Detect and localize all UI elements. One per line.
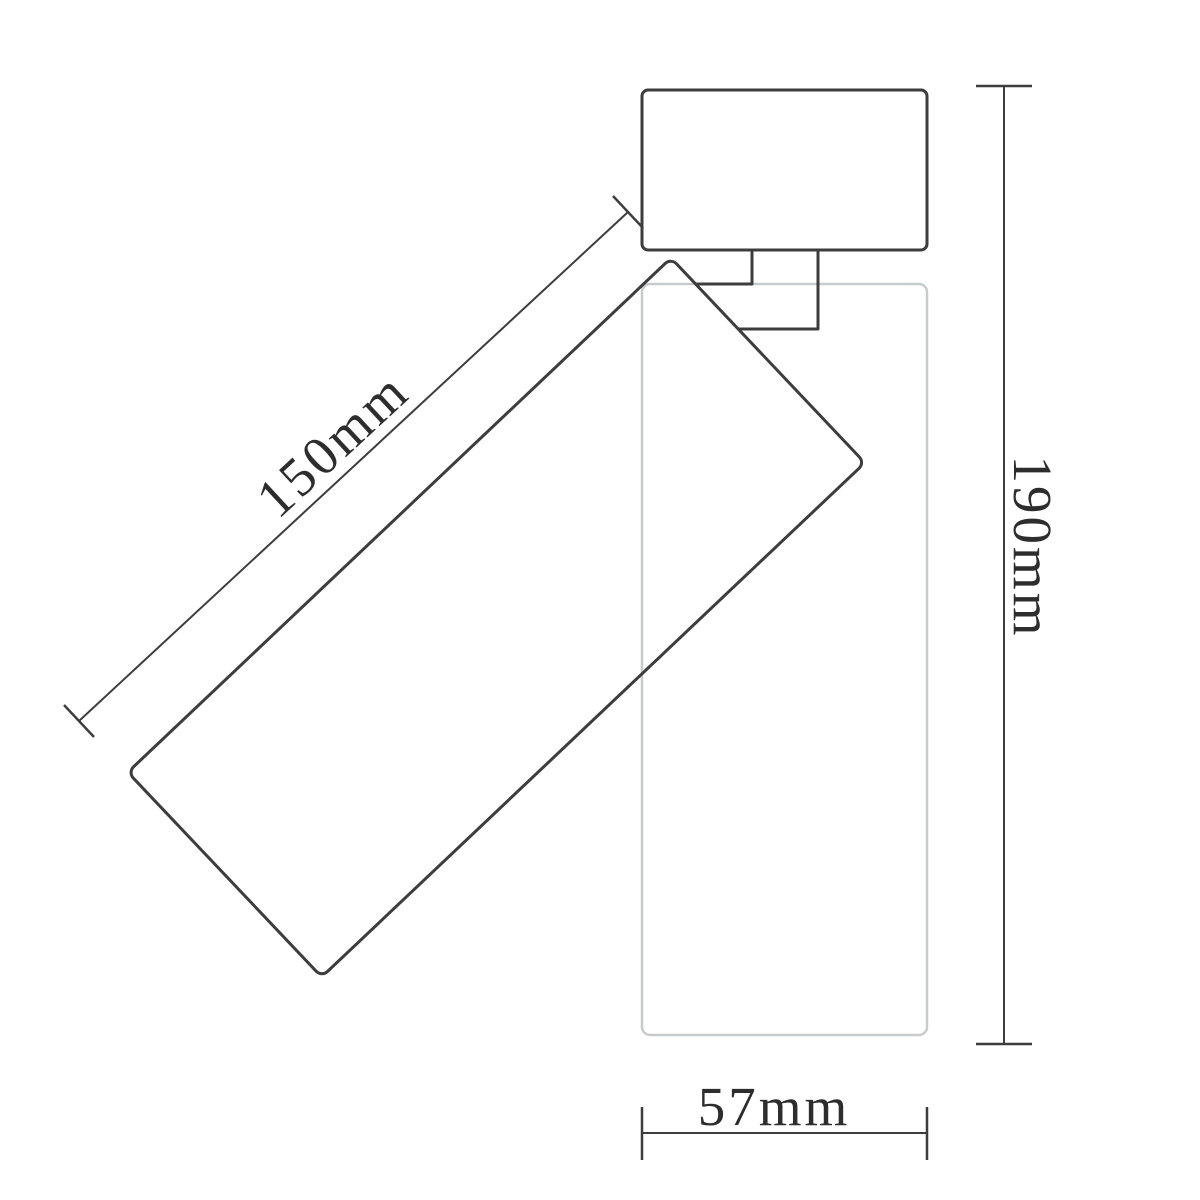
dimension-width: 57mm [642, 1076, 927, 1160]
dimension-length: 150mm [64, 196, 643, 737]
lamp-body-tilted [128, 258, 865, 977]
dimension-height: 190mm [976, 86, 1063, 1044]
drawing-canvas: 150mm 190mm 57mm [0, 0, 1200, 1200]
dim-label-length: 150mm [245, 360, 421, 529]
lamp-body-vertical-ghost [642, 284, 927, 1035]
dim-line-length [79, 212, 628, 721]
dim-label-width: 57mm [698, 1076, 851, 1137]
dim-label-height: 190mm [1002, 455, 1063, 638]
pivot-bracket [695, 250, 818, 329]
dim-tick-length-end [613, 196, 643, 228]
mounting-base [642, 90, 927, 250]
dim-tick-length-start [64, 705, 94, 737]
dimension-drawing-page: 150mm 190mm 57mm [0, 0, 1200, 1200]
